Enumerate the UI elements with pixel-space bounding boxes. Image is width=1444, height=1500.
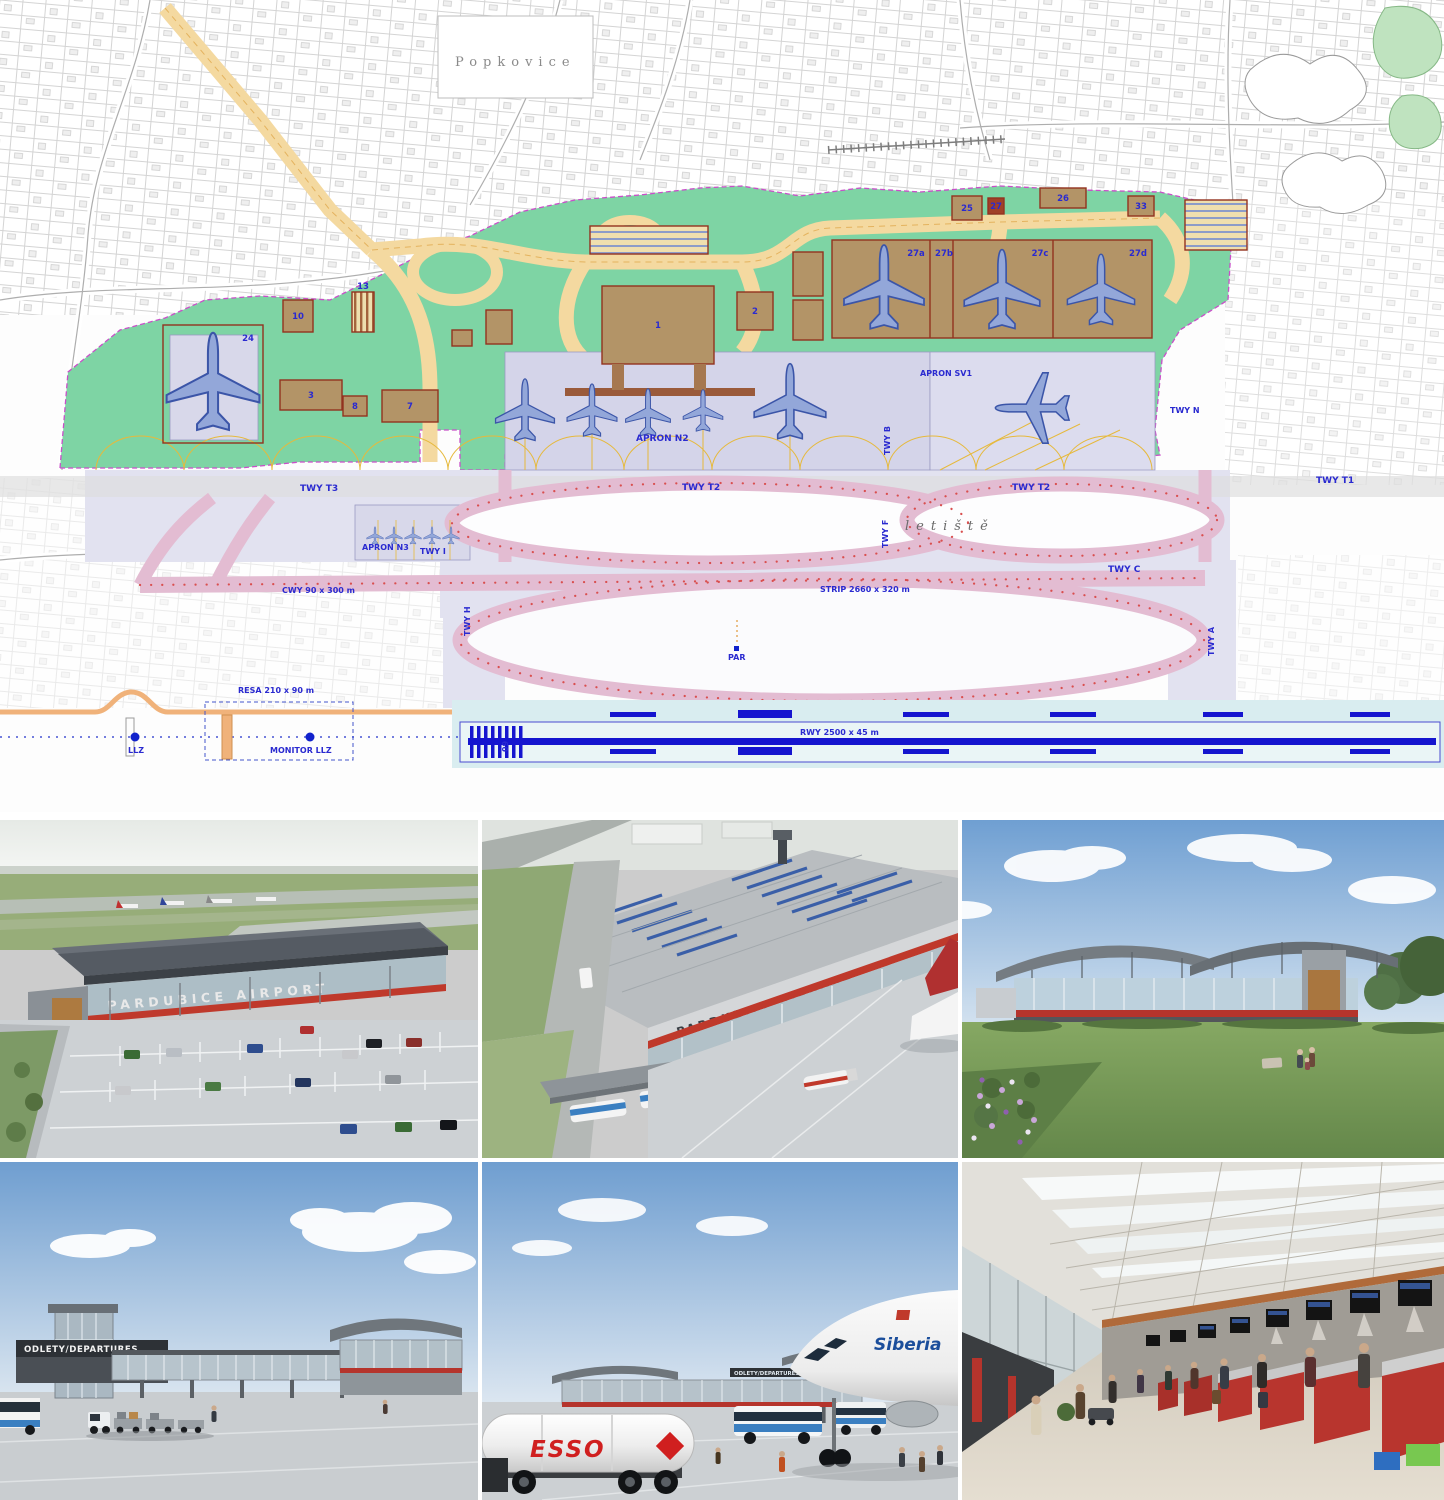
place-label: Popkovice [455, 55, 576, 70]
bay-27b: 27b [935, 249, 953, 259]
site-plan-drawing: Popkovice [0, 0, 1444, 812]
airline-title-text: Siberia [874, 1335, 941, 1355]
label-llz: LLZ [128, 746, 144, 755]
render-aerial-roof: PARDUBICE AIRPORT [482, 820, 958, 1158]
label-twy-t3: TWY T3 [300, 484, 338, 494]
apron [0, 1392, 478, 1500]
label-twy-t1: TWY T1 [1316, 476, 1354, 486]
render-apron-departures: ODLETY/DEPARTURES [0, 1162, 478, 1500]
bnum-25: 25 [961, 204, 973, 214]
label-strip: STRIP 2660 x 320 m [820, 585, 910, 594]
bay-27d: 27d [1129, 249, 1147, 259]
label-twy-t2e: TWY T2 [1012, 483, 1050, 493]
renders-row-2: ODLETY/DEPARTURES [0, 1162, 1444, 1500]
label-twy-n: TWY N [1170, 406, 1200, 415]
bnum-3: 3 [308, 391, 314, 401]
label-twy-a: TWY A [1207, 626, 1216, 656]
render-aerial-parking: PARDUBICE AIRPORT [0, 820, 478, 1158]
render-apron-esso: ODLETY/DEPARTURES [482, 1162, 958, 1500]
label-twy-i: TWY I [420, 547, 446, 556]
bnum-terminal: 1 [655, 321, 661, 331]
label-apron-n3: APRON N3 [362, 543, 409, 552]
bnum-8: 8 [352, 402, 358, 412]
bnum-10: 10 [292, 312, 304, 322]
bridge-sign-text: ODLETY/DEPARTURES [734, 1371, 799, 1377]
bnum-27: 27 [990, 202, 1002, 212]
render-lawn-view [962, 820, 1444, 1158]
bnum-13: 13 [357, 282, 369, 292]
bnum-26: 26 [1057, 194, 1069, 204]
site-plan: Popkovice [0, 0, 1444, 812]
label-twy-b: TWY B [883, 426, 892, 455]
label-monitor-llz: MONITOR LLZ [270, 746, 332, 755]
label-apron-n2: APRON N2 [636, 434, 689, 444]
renders-row-1: PARDUBICE AIRPORT [0, 820, 1444, 1158]
label-twy-c2: TWY C [1108, 565, 1141, 575]
runway [452, 700, 1444, 768]
label-apron-sv1: APRON SV1 [920, 369, 972, 378]
bay-27a: 27a [907, 249, 925, 259]
label-rwy-09: 09 [501, 740, 510, 752]
label-twy-t2: TWY T2 [682, 483, 720, 493]
popkovice-parcel: Popkovice [438, 16, 593, 98]
label-twy-f: TWY F [881, 520, 890, 548]
bnum-2: 2 [752, 307, 758, 317]
handwriting-letiste: letiště [905, 519, 995, 534]
esso-brand-text: ESSO [530, 1437, 606, 1463]
airport-collage: Popkovice [0, 0, 1444, 1500]
label-resa: RESA 210 x 90 m [238, 686, 314, 695]
bnum-7: 7 [407, 402, 413, 412]
label-rwy: RWY 2500 x 45 m [800, 728, 879, 737]
bnum-24: 24 [242, 334, 254, 344]
render-interior-checkin [962, 1162, 1444, 1500]
bay-27c: 27c [1032, 249, 1049, 259]
label-twy-h: TWY H [463, 606, 472, 636]
label-par: PAR [728, 653, 745, 662]
bnum-33: 33 [1135, 202, 1147, 212]
label-cwy: CWY 90 x 300 m [282, 586, 355, 595]
